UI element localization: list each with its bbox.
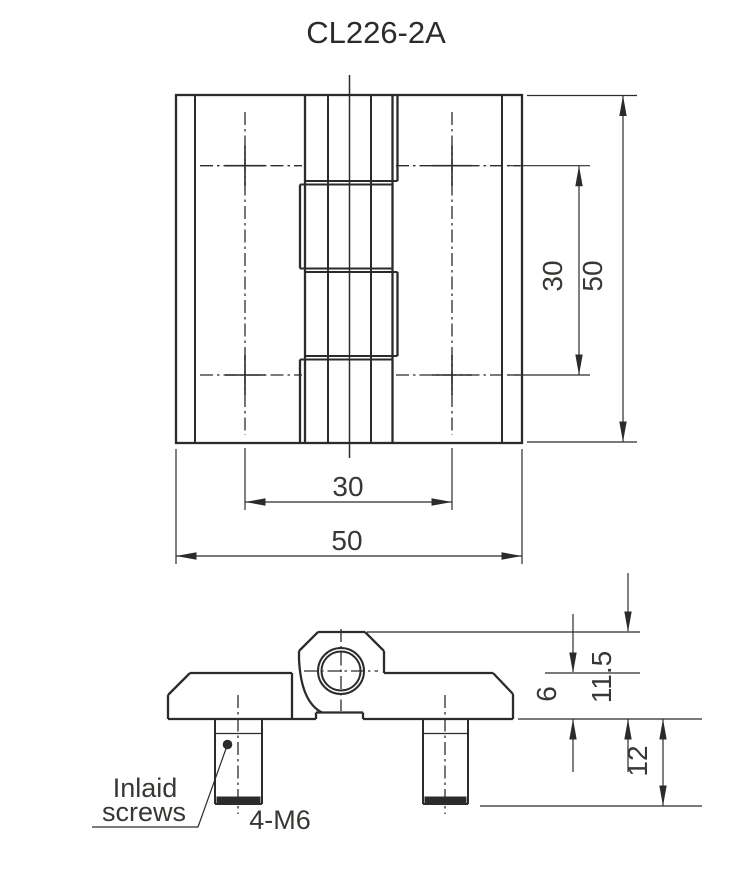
dim-label-plate-thickness: 6 bbox=[531, 686, 562, 702]
dim-front-hole-spacing-x: 30 bbox=[245, 448, 452, 510]
front-view bbox=[176, 75, 522, 458]
dim-label-knuckle-height: 11.5 bbox=[586, 651, 617, 703]
screw-spec-label: 4-M6 bbox=[249, 805, 311, 835]
drawing-title: CL226-2A bbox=[306, 15, 446, 50]
dim-front-width: 50 bbox=[176, 449, 522, 564]
hinge-barrel-lines bbox=[300, 75, 398, 458]
hole-center-crosses bbox=[225, 146, 472, 395]
screw-left bbox=[215, 695, 262, 814]
technical-drawing-canvas: CL226-2A bbox=[0, 0, 750, 889]
dim-label-front-hole-spacing-x: 30 bbox=[332, 471, 363, 502]
dim-plate-thickness: 6 bbox=[531, 614, 577, 772]
dim-label-front-height: 50 bbox=[577, 260, 608, 291]
dim-label-front-hole-spacing-y: 30 bbox=[537, 260, 568, 291]
hole-centerlines bbox=[200, 112, 520, 435]
screw-right bbox=[423, 695, 468, 814]
dim-label-screw-length: 12 bbox=[622, 745, 653, 776]
dim-label-front-width: 50 bbox=[331, 525, 362, 556]
side-view-dimensions: 6 11.5 12 bbox=[367, 573, 702, 806]
screw-note-line2: screws bbox=[102, 797, 186, 827]
